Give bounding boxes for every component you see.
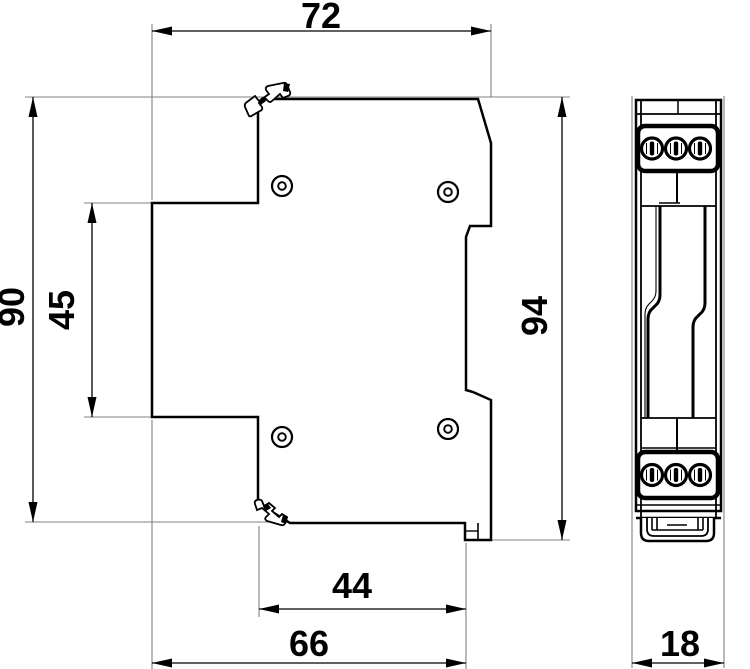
dim-94: [558, 97, 567, 540]
side-view-body-outline: [152, 99, 491, 540]
front-view: [636, 100, 721, 541]
screw-slot: [674, 468, 678, 482]
arrowhead-left: [152, 659, 172, 668]
arrowhead-down: [558, 520, 567, 540]
arrowhead-down: [88, 397, 97, 417]
screw-slot: [650, 142, 654, 156]
dim-label-overall-height: 94: [514, 296, 555, 336]
screw-slot: [698, 142, 702, 156]
arrowhead-down: [29, 502, 38, 522]
dim-label-module-width: 18: [660, 623, 700, 664]
terminal-block-bottom: [638, 452, 718, 498]
arrowhead-up: [29, 97, 38, 117]
dim-label-lower-width: 44: [332, 565, 372, 606]
screw-terminal-icon: [642, 465, 663, 486]
screw-slot: [674, 142, 678, 156]
rivet-top-right-inner: [444, 188, 452, 196]
dim-label-top-width: 72: [301, 0, 341, 36]
screw-terminal-icon: [642, 138, 663, 159]
screw-slot: [698, 468, 702, 482]
arrowhead-up: [558, 97, 567, 117]
dim-label-step-height: 45: [41, 290, 82, 330]
arrowhead-left: [152, 27, 172, 36]
arrowhead-right: [446, 659, 466, 668]
arrowhead-left: [632, 659, 652, 668]
arrowhead-right: [446, 605, 466, 614]
dim-label-base-width: 66: [289, 623, 329, 664]
screw-terminal-icon: [690, 465, 711, 486]
dimension-drawing: 72 90 45 94 44 66 18: [0, 0, 750, 669]
arrowhead-right: [471, 27, 491, 36]
dim-45: [88, 203, 97, 417]
side-view: [152, 83, 491, 540]
arrowhead-right: [704, 659, 724, 668]
terminal-screws-top: [642, 138, 711, 159]
dim-label-body-height: 90: [0, 287, 32, 327]
screw-terminal-icon: [666, 465, 687, 486]
rivet-top-left-inner: [278, 182, 286, 190]
arrowhead-up: [88, 203, 97, 223]
rivet-bottom-left-inner: [278, 433, 286, 441]
terminal-block-top: [638, 126, 718, 171]
screw-terminal-icon: [666, 138, 687, 159]
screw-terminal-icon: [690, 138, 711, 159]
technical-drawing-page: 72 90 45 94 44 66 18: [0, 0, 750, 669]
screw-slot: [650, 468, 654, 482]
arrowhead-left: [259, 605, 279, 614]
terminal-screws-bottom: [642, 465, 711, 486]
rivet-bottom-right-inner: [444, 425, 452, 433]
